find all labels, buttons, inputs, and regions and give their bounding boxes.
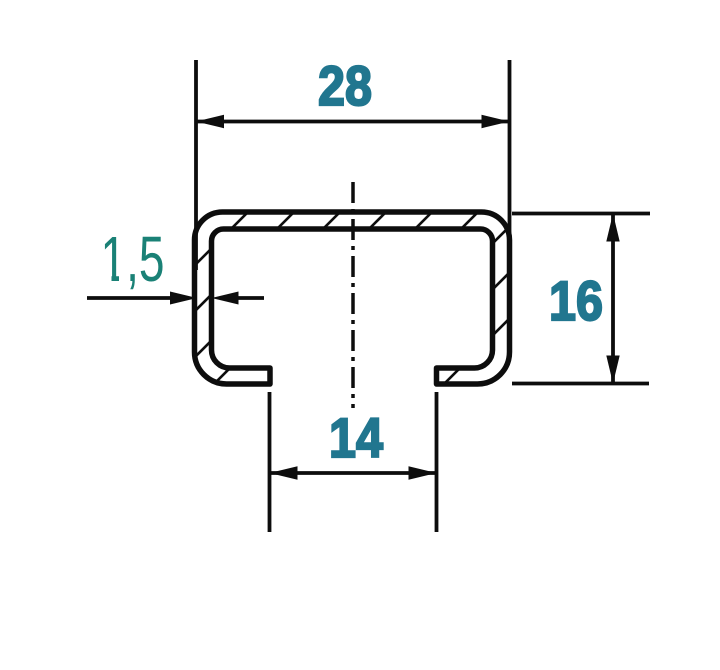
- svg-text:14: 14: [329, 406, 383, 469]
- svg-text:16: 16: [549, 269, 603, 332]
- svg-text:1,5: 1,5: [101, 223, 165, 295]
- svg-text:28: 28: [318, 54, 372, 117]
